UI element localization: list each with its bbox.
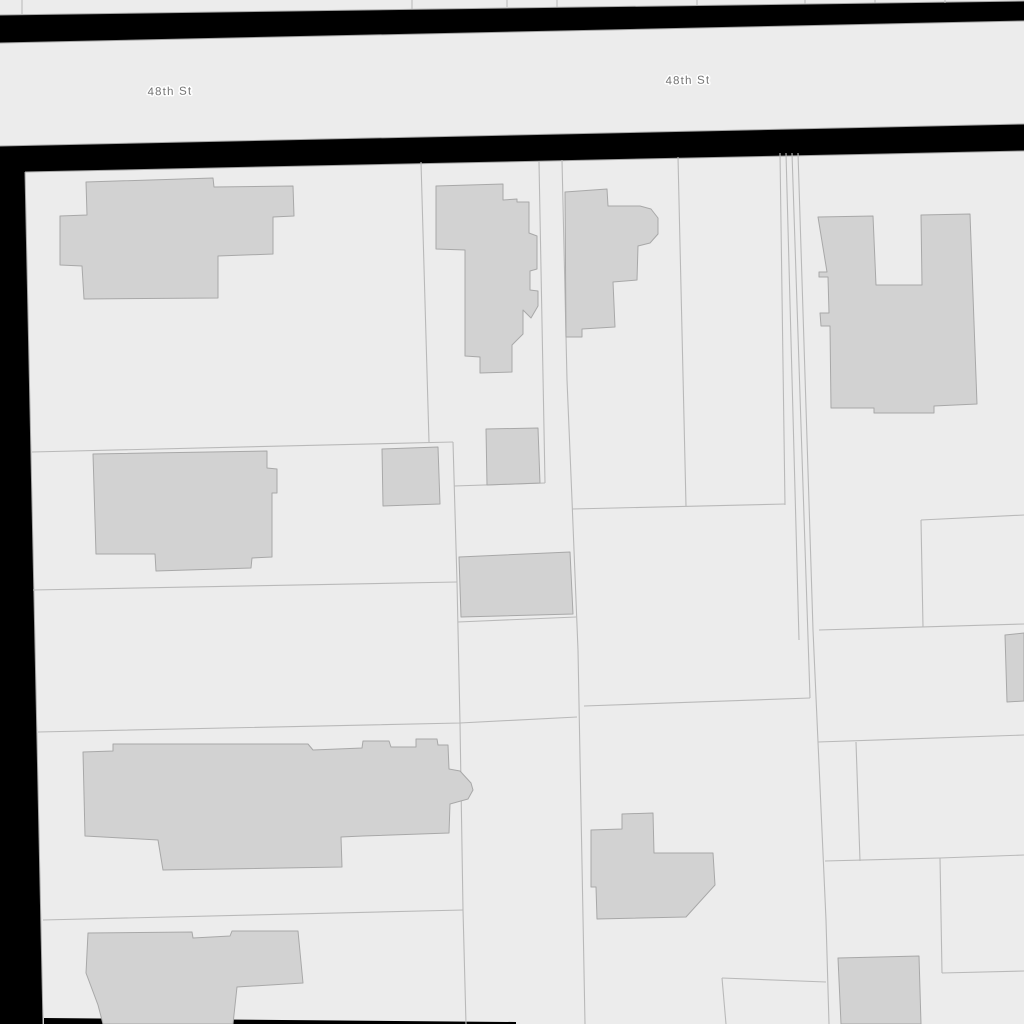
street-name-label-2: 48th St — [665, 75, 710, 88]
building-5-footprint — [93, 451, 277, 571]
map-canvas[interactable]: 48th St48th St — [0, 0, 1024, 1024]
building-12-footprint — [1005, 633, 1024, 702]
building-11-footprint — [838, 956, 921, 1024]
map-viewport[interactable]: 48th St48th St — [0, 0, 1024, 1024]
building-8-footprint — [459, 552, 573, 617]
building-6-footprint — [382, 447, 440, 506]
building-7-footprint — [486, 428, 540, 485]
street-name-label-1: 48th St — [147, 86, 192, 99]
